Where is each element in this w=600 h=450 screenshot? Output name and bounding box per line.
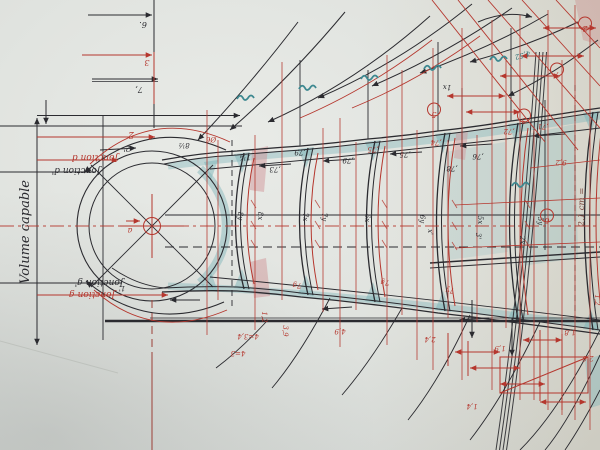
annotation-text: ,73 [269,165,281,173]
annotation-text: 6x [363,214,371,222]
annotation-text: 7x [301,213,309,221]
annotation-text: 3' [474,233,482,239]
annotation-text: 2,4 [424,335,436,343]
jonction-g-prime-label: Jonction g' [75,277,126,287]
annotation-text: ,75 [399,150,411,158]
annotation-text: 1,8 [564,328,576,336]
annotation-text: 7, [135,85,143,94]
volume-capable-label: Volume capable [18,180,33,284]
drawing-canvas: Volume capable Jonction d Jonction d' Jo… [0,0,600,450]
scale-note-label: 2,1 cm = [577,188,587,228]
annotation-text: 3 [144,58,149,67]
annotation-text: 7g [380,278,389,286]
annotation-text: 4,9 [334,327,347,335]
annotation-text: 5y [536,217,544,226]
jonction-d-prime-label: Jonction d' [52,165,103,175]
annotation-text: 2 [128,129,135,139]
annotation-text: 4=3,4 [237,332,259,340]
annotation-text: x' [426,229,434,235]
annotation-text: 1,9 [494,344,506,352]
jonction-d-label: Jonction d [72,152,120,162]
annotation-text: 1,4 [466,402,477,410]
annotation-text: 2,6 [582,354,595,362]
annotation-text: 6. [139,20,147,29]
photographed-technical-drawing: Volume capable Jonction d Jonction d' Jo… [0,0,600,450]
annotation-text: ,79 [294,148,306,156]
annotation-text: 6y [418,215,426,224]
annotation-text: 5 [431,110,436,119]
annotation-text: 7g [292,281,301,289]
annotation-text: ,74 [430,138,441,146]
annotation-text: ,72 [503,127,515,135]
annotation-text: 1,2 [593,294,600,306]
annotation-text: 8x [256,212,264,220]
annotation-text: 8½ [178,141,189,149]
annotation-text: 2' [123,144,131,153]
annotation-text: 1' [119,284,125,292]
annotation-text: ,71 [537,122,548,130]
annotation-text: ,76 [472,152,484,160]
annotation-text: 3,9 [281,325,289,337]
annotation-text: Ø6 [205,135,217,143]
annotation-text: 2 [582,24,588,33]
annotation-text: 3 [521,116,526,125]
annotation-text: 1,2 [260,311,268,323]
annotation-text: 9,2 [555,158,567,166]
annotation-text: 7y [445,286,454,294]
annotation-text: 1x [443,83,451,91]
annotation-text: ,78 [446,164,458,172]
annotation-text: 5x [476,216,484,224]
annotation-text: 8y [236,212,244,221]
annotation-text: 6 [544,216,549,225]
annotation-text: a [127,226,132,235]
annotation-text: 1¼ [239,153,250,161]
annotation-text: 2x [518,235,526,244]
annotation-text: 4=3 [230,349,246,357]
annotation-text: ,75 [367,145,379,153]
jonction-g-label: Jonction g [69,289,117,299]
annotation-text: 7y [320,213,328,222]
annotation-text: ,79 [342,156,354,164]
